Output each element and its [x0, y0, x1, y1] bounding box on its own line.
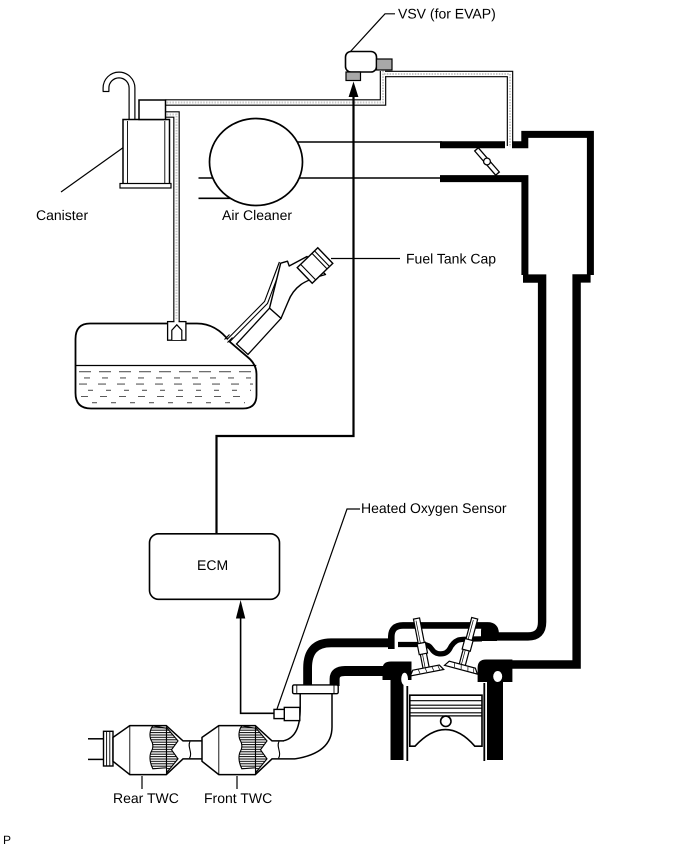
- svg-text:Canister: Canister: [36, 207, 88, 223]
- svg-text:Front TWC: Front TWC: [204, 790, 272, 806]
- svg-text:VSV (for EVAP): VSV (for EVAP): [398, 6, 496, 22]
- svg-text:Air Cleaner: Air Cleaner: [222, 207, 292, 223]
- svg-text:P: P: [3, 833, 11, 845]
- svg-text:Heated Oxygen Sensor: Heated Oxygen Sensor: [361, 500, 507, 516]
- svg-text:Rear TWC: Rear TWC: [113, 790, 179, 806]
- svg-text:ECM: ECM: [197, 557, 228, 573]
- svg-text:Fuel Tank Cap: Fuel Tank Cap: [406, 251, 496, 267]
